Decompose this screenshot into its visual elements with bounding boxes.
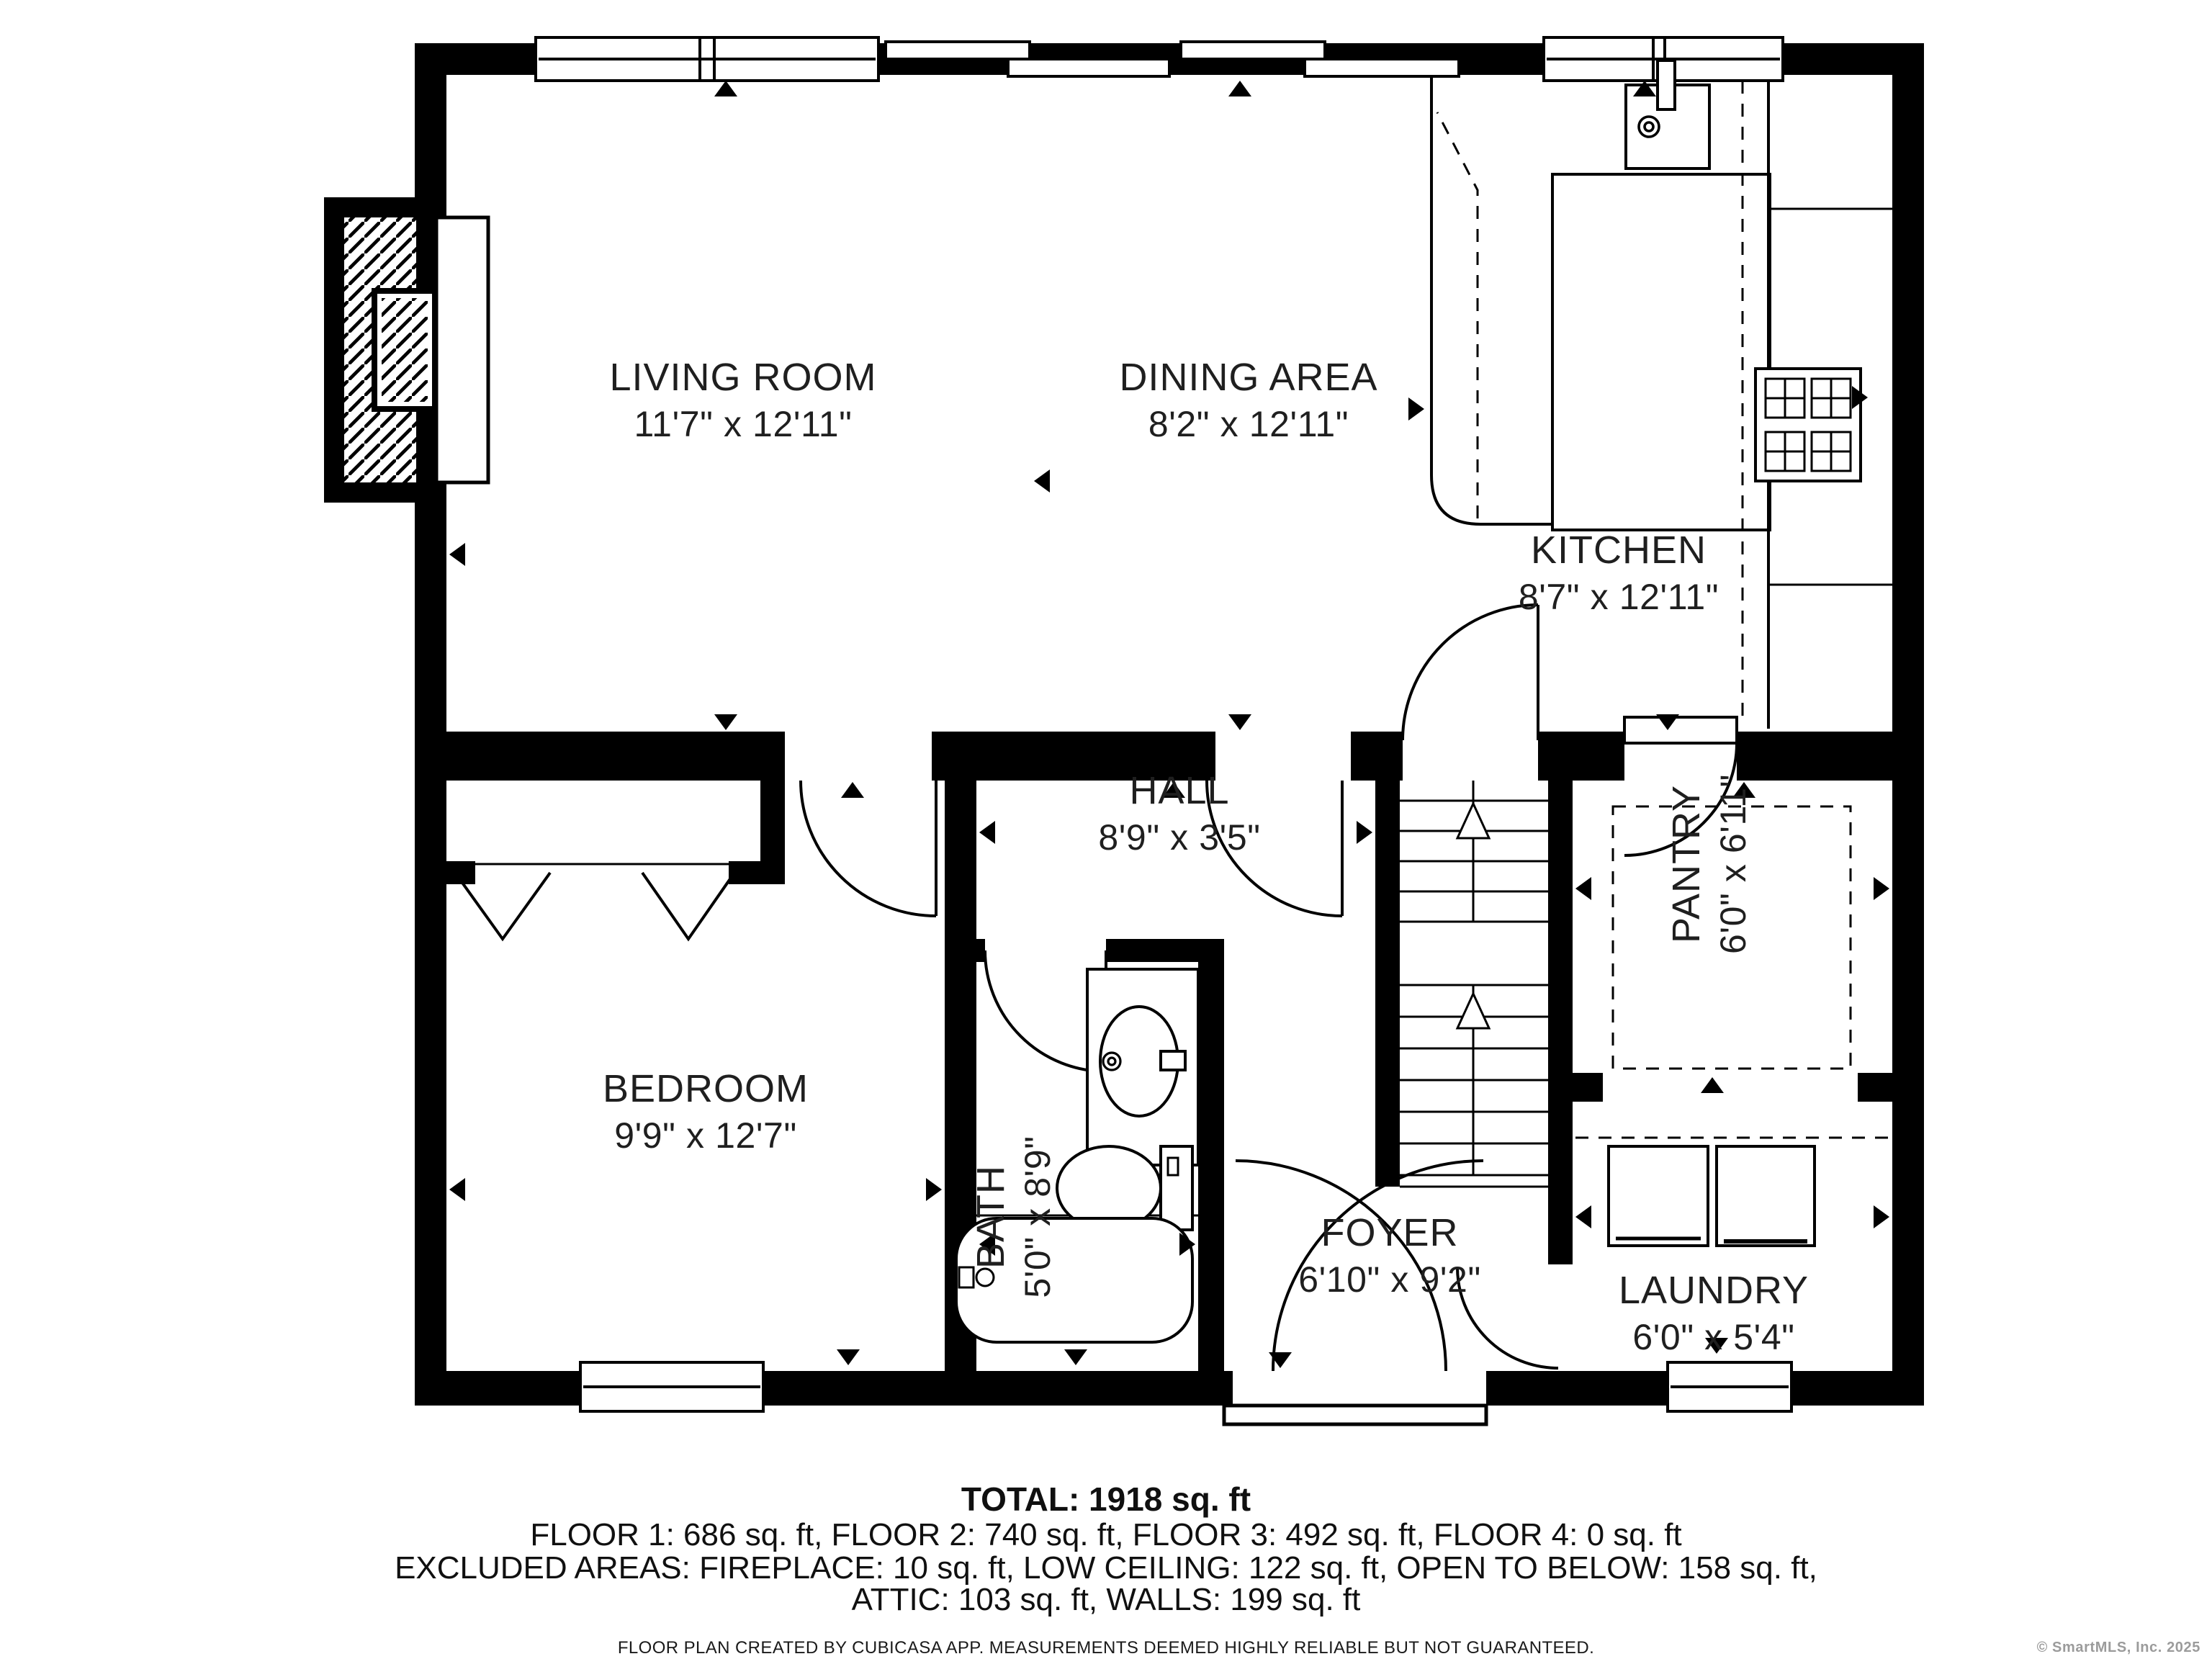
front-door [1224, 1371, 1486, 1424]
room-dims: 8'7" x 12'11" [1403, 575, 1835, 622]
laundry-window [1668, 1362, 1791, 1411]
room-dims: 8'9" x 3'5" [963, 815, 1395, 863]
room-dims: 8'2" x 12'11" [1033, 402, 1465, 449]
floor-plan-page: LIVING ROOM 11'7" x 12'11" DINING AREA 8… [0, 0, 2212, 1659]
room-name: DINING AREA [1033, 354, 1465, 402]
room-label-kitchen: KITCHEN 8'7" x 12'11" [1403, 527, 1835, 622]
staircase [1400, 781, 1548, 1187]
area-summary: TOTAL: 1918 sq. ft FLOOR 1: 686 sq. ft, … [0, 1482, 2212, 1617]
room-name: PANTRY [1663, 713, 1711, 1015]
room-dims: 5'0" x 8'9" [1015, 1051, 1063, 1382]
bedroom-door [801, 781, 936, 916]
room-name: LAUNDRY [1498, 1267, 1930, 1315]
floor-areas: FLOOR 1: 686 sq. ft, FLOOR 2: 740 sq. ft… [0, 1519, 2212, 1552]
room-dims: 6'0" x 5'4" [1498, 1315, 1930, 1362]
copyright-text: © SmartMLS, Inc. 2025 [2037, 1640, 2200, 1656]
room-label-living-room: LIVING ROOM 11'7" x 12'11" [527, 354, 959, 449]
room-label-dining-area: DINING AREA 8'2" x 12'11" [1033, 354, 1465, 449]
washer [1609, 1146, 1708, 1246]
room-label-bath: BATH 5'0" x 8'9" [968, 1051, 1071, 1382]
bathroom-sink [1087, 969, 1198, 1165]
room-label-bedroom: BEDROOM 9'9" x 12'7" [490, 1066, 922, 1161]
room-name: LIVING ROOM [527, 354, 959, 402]
room-name: BEDROOM [490, 1066, 922, 1113]
scale-wrapper: LIVING ROOM 11'7" x 12'11" DINING AREA 8… [0, 0, 2212, 1659]
laundry-fixtures [1575, 1138, 1889, 1246]
closet-bifold-doors [455, 864, 734, 939]
fireplace [324, 197, 488, 503]
bedroom-window [580, 1362, 763, 1411]
room-dims: 6'0" x 6'11" [1711, 713, 1758, 1015]
room-name: FOYER [1174, 1210, 1606, 1257]
total-area: TOTAL: 1918 sq. ft [0, 1482, 2212, 1516]
floor-plan-drawing [0, 0, 2212, 1455]
room-name: KITCHEN [1403, 527, 1835, 575]
room-label-hall: HALL 8'9" x 3'5" [963, 768, 1395, 863]
living-room-window [536, 37, 878, 81]
room-label-pantry: PANTRY 6'0" x 6'11" [1663, 713, 1770, 1015]
kitchen-fixtures [1431, 60, 1892, 729]
excluded-areas-line1: EXCLUDED AREAS: FIREPLACE: 10 sq. ft, LO… [0, 1552, 2212, 1584]
room-dims: 9'9" x 12'7" [490, 1113, 922, 1161]
excluded-areas-line2: ATTIC: 103 sq. ft, WALLS: 199 sq. ft [0, 1584, 2212, 1617]
room-name: BATH [968, 1051, 1015, 1382]
kitchen-island [1552, 174, 1770, 530]
dryer [1717, 1146, 1815, 1246]
disclaimer-text: FLOOR PLAN CREATED BY CUBICASA APP. MEAS… [0, 1637, 2212, 1658]
kitchen-door [1403, 605, 1538, 740]
room-name: HALL [963, 768, 1395, 815]
kitchen-peninsula-counter [1431, 75, 1552, 524]
stove [1755, 369, 1861, 481]
room-label-laundry: LAUNDRY 6'0" x 5'4" [1498, 1267, 1930, 1362]
room-dims: 11'7" x 12'11" [527, 402, 959, 449]
